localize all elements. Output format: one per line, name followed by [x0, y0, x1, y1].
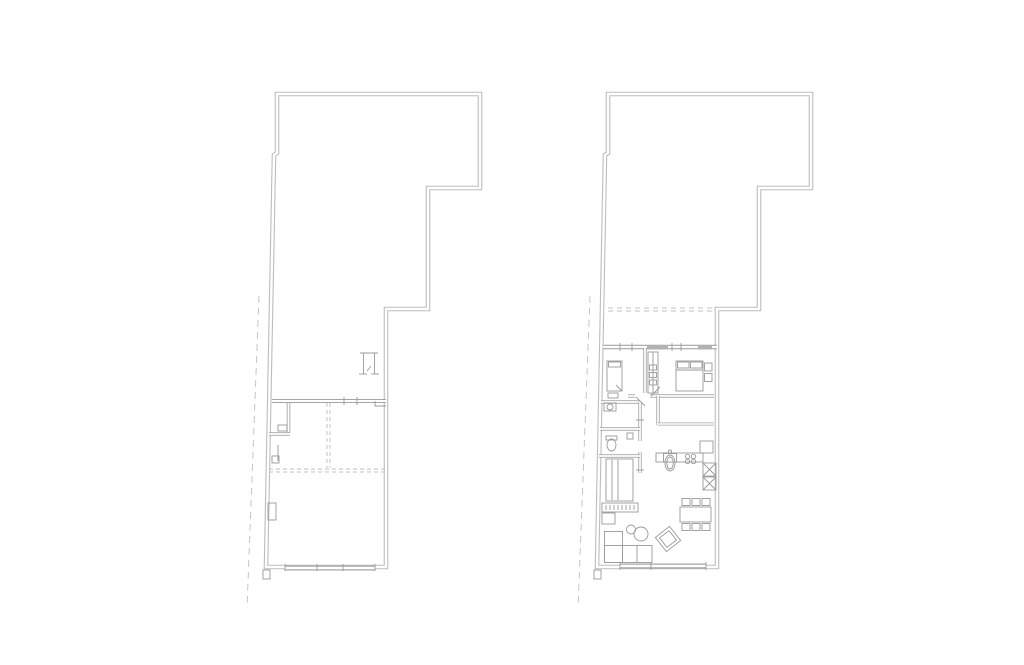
boundary-line	[578, 296, 590, 608]
outer-walls	[597, 94, 811, 567]
pillow	[691, 362, 703, 368]
nightstand	[705, 363, 713, 371]
chair	[692, 499, 700, 506]
chair	[702, 499, 710, 506]
outer-walls	[597, 94, 811, 567]
appliance	[700, 441, 713, 453]
chair	[682, 499, 690, 506]
wall-pier	[647, 345, 668, 350]
coffee-table-round	[634, 527, 648, 541]
nightstand	[608, 393, 618, 398]
stove-burner	[691, 459, 695, 463]
sofa-chaise	[605, 532, 623, 563]
dining-table	[680, 507, 711, 522]
toilet-bowl	[607, 439, 616, 451]
floor-plan-sheet	[0, 0, 1024, 665]
plan-line	[667, 457, 673, 469]
pillow	[609, 362, 621, 367]
right-floor-plan	[578, 94, 811, 608]
fixture	[278, 425, 287, 431]
chair	[692, 524, 700, 531]
bed-double	[676, 361, 703, 391]
wall-pier	[698, 345, 712, 350]
bed-single	[607, 361, 622, 391]
armchair	[655, 526, 680, 551]
outer-walls	[266, 94, 480, 567]
vent	[627, 433, 633, 439]
stove-burner	[685, 454, 689, 458]
plan-line	[367, 366, 371, 371]
chair	[702, 524, 710, 531]
plan-line	[607, 404, 613, 410]
boundary-line	[247, 296, 259, 608]
floor-plan-drawing	[0, 0, 1024, 665]
sofa	[605, 546, 653, 563]
plan-line	[616, 385, 622, 391]
nightstand	[705, 374, 713, 382]
plinth	[594, 570, 601, 579]
stove-burner	[685, 459, 689, 463]
closet	[606, 459, 633, 501]
stove-burner	[691, 454, 695, 458]
left-floor-plan	[247, 94, 480, 608]
plan-line	[660, 531, 677, 548]
pillow	[678, 362, 690, 368]
side-table	[602, 513, 615, 524]
plinth	[263, 570, 270, 579]
sideboard	[602, 503, 638, 512]
chair	[682, 524, 690, 531]
outer-walls	[266, 94, 480, 567]
